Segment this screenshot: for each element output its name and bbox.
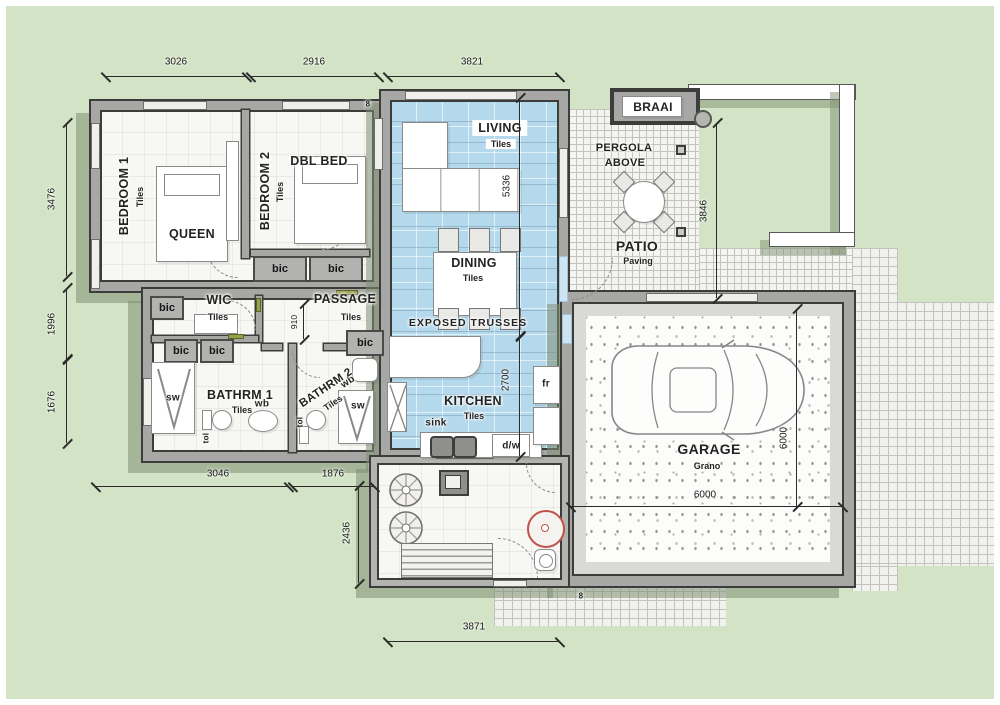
dim-label: 3821 <box>461 57 483 68</box>
dim-line <box>66 288 67 359</box>
dim-line <box>519 98 520 336</box>
kitchen-unit-oven <box>387 382 407 432</box>
water-tank <box>388 510 424 546</box>
dim-label: 1996 <box>47 313 58 335</box>
built-in-cupboard: bic <box>346 330 384 356</box>
toilet-cistern <box>202 410 212 430</box>
room-label: BATHRM 1 <box>207 388 273 402</box>
dim-label: 3871 <box>463 622 485 633</box>
round-fixture-center <box>541 524 549 532</box>
yard-basin-inner <box>445 475 461 489</box>
wall-bedroom-divider <box>242 110 249 258</box>
built-in-cupboard: bic <box>164 339 198 363</box>
window <box>91 239 100 289</box>
driveway-strip-top <box>852 248 898 314</box>
finish-label: Tiles <box>463 273 483 283</box>
kitchen-tall-unit <box>533 407 560 445</box>
patio-table <box>623 181 665 223</box>
dim-label: 6000 <box>779 427 790 449</box>
room-label: PASSAGE <box>314 292 376 306</box>
door-jamb <box>256 298 261 312</box>
toilet <box>306 410 326 430</box>
dim-line <box>303 304 304 339</box>
door-tag: 8 <box>366 100 371 109</box>
driveway-strip-bottom <box>852 566 898 591</box>
fixture-label: sink <box>425 418 446 429</box>
finish-label: Tiles <box>232 405 252 415</box>
window <box>405 91 517 100</box>
dim-line <box>358 486 359 583</box>
fixture-label: sw <box>351 401 365 412</box>
wash-basin <box>352 358 378 382</box>
dim-label: 3026 <box>165 57 187 68</box>
built-in-cupboard: bic <box>309 256 363 282</box>
fixture-label: tol <box>202 433 211 444</box>
door-opening-patio <box>559 256 568 302</box>
dim-line <box>251 76 378 77</box>
finish-label: Tiles <box>341 312 361 322</box>
dim-label: 2436 <box>342 522 353 544</box>
pergola-post <box>676 227 686 237</box>
window <box>646 293 758 302</box>
dim-label: 2916 <box>303 57 325 68</box>
toilet-cistern <box>299 426 309 444</box>
built-in-cupboard: bic <box>150 296 184 320</box>
wash-basin <box>248 410 278 432</box>
finish-label: Paving <box>623 256 653 266</box>
room-label: GARAGE <box>677 441 740 457</box>
dim-line <box>519 336 520 456</box>
screen-wall-right <box>839 84 855 247</box>
fixture-label: d/w <box>502 441 520 452</box>
finish-label: Tiles <box>486 139 516 149</box>
room-label: WIC <box>206 293 231 307</box>
dining-chair <box>469 228 490 252</box>
fixture-label: tol <box>296 417 305 428</box>
oven-glyph <box>388 383 408 433</box>
dim-label: 3046 <box>207 469 229 480</box>
sink-bowl <box>453 436 477 458</box>
room-label: BEDROOM 1 <box>117 157 131 235</box>
furniture-label: QUEEN <box>169 227 215 241</box>
dim-label: 5336 <box>502 175 513 197</box>
pergola-note: ABOVE <box>605 157 646 169</box>
dim-line <box>796 309 797 506</box>
furniture-label: DBL BED <box>290 154 347 168</box>
built-in-cupboard: bic <box>200 339 234 363</box>
dim-line <box>106 76 246 77</box>
pergola-column <box>694 110 712 128</box>
window <box>282 101 350 110</box>
window <box>143 101 207 110</box>
dim-label: 3476 <box>47 188 58 210</box>
finish-label: Tiles <box>275 182 285 202</box>
dim-line <box>66 359 67 443</box>
yard-toilet-bowl <box>539 554 553 568</box>
pergola-note: PERGOLA <box>596 142 653 154</box>
floor-plan: BRAAI BEDROOM 1 Tiles QUEEN BEDROOM 2 <box>0 0 1000 705</box>
window <box>374 118 383 170</box>
finish-label: Grano <box>694 461 721 471</box>
room-label: DINING <box>451 256 497 270</box>
room-label: BEDROOM 2 <box>258 152 272 230</box>
dim-line <box>571 506 842 507</box>
water-tank <box>388 472 424 508</box>
sink-bowl <box>430 436 454 458</box>
toilet <box>212 410 232 430</box>
dim-line <box>96 486 288 487</box>
fixture-label: sw <box>166 393 180 404</box>
kitchen-island <box>389 336 481 378</box>
dim-label: 3846 <box>699 200 710 222</box>
wall-passage-bath <box>262 344 282 350</box>
dim-label: 2700 <box>501 369 512 391</box>
dim-label: 6000 <box>694 490 716 501</box>
yard-steps <box>401 543 493 578</box>
trusses-note: EXPOSED TRUSSES <box>409 317 527 329</box>
built-in-cupboard: bic <box>253 256 307 282</box>
dim-line <box>716 123 717 298</box>
wardrobe <box>226 141 239 241</box>
window <box>91 123 100 169</box>
dim-label: 1876 <box>322 469 344 480</box>
finish-label: Tiles <box>135 187 145 207</box>
dim-line <box>293 486 374 487</box>
dim-line <box>388 76 559 77</box>
room-label: KITCHEN <box>444 394 502 408</box>
dim-line <box>66 123 67 276</box>
dim-label: 910 <box>289 315 299 329</box>
door-opening-yard <box>493 580 527 587</box>
garage-apron-paving <box>494 582 726 626</box>
finish-label: Tiles <box>464 411 484 421</box>
dim-line <box>388 641 559 642</box>
driveway-paving <box>852 302 1000 566</box>
fixture-label: fr <box>542 379 550 390</box>
dim-label: 1676 <box>47 391 58 413</box>
dining-chair <box>500 228 521 252</box>
dining-chair <box>438 228 459 252</box>
door-tag: 8 <box>579 592 584 601</box>
room-label: PATIO <box>616 238 658 254</box>
pergola-post <box>676 145 686 155</box>
finish-label: Tiles <box>208 312 228 322</box>
screen-wall-top <box>688 84 856 100</box>
screen-wall-return <box>769 232 855 247</box>
shower <box>338 390 374 444</box>
door-opening-garage <box>562 314 572 344</box>
shower-glyph <box>339 391 375 445</box>
braai-label: BRAAI <box>633 100 673 114</box>
sliding-door <box>559 148 568 218</box>
sofa-chaise <box>402 122 448 174</box>
bed-pillow <box>164 174 220 196</box>
